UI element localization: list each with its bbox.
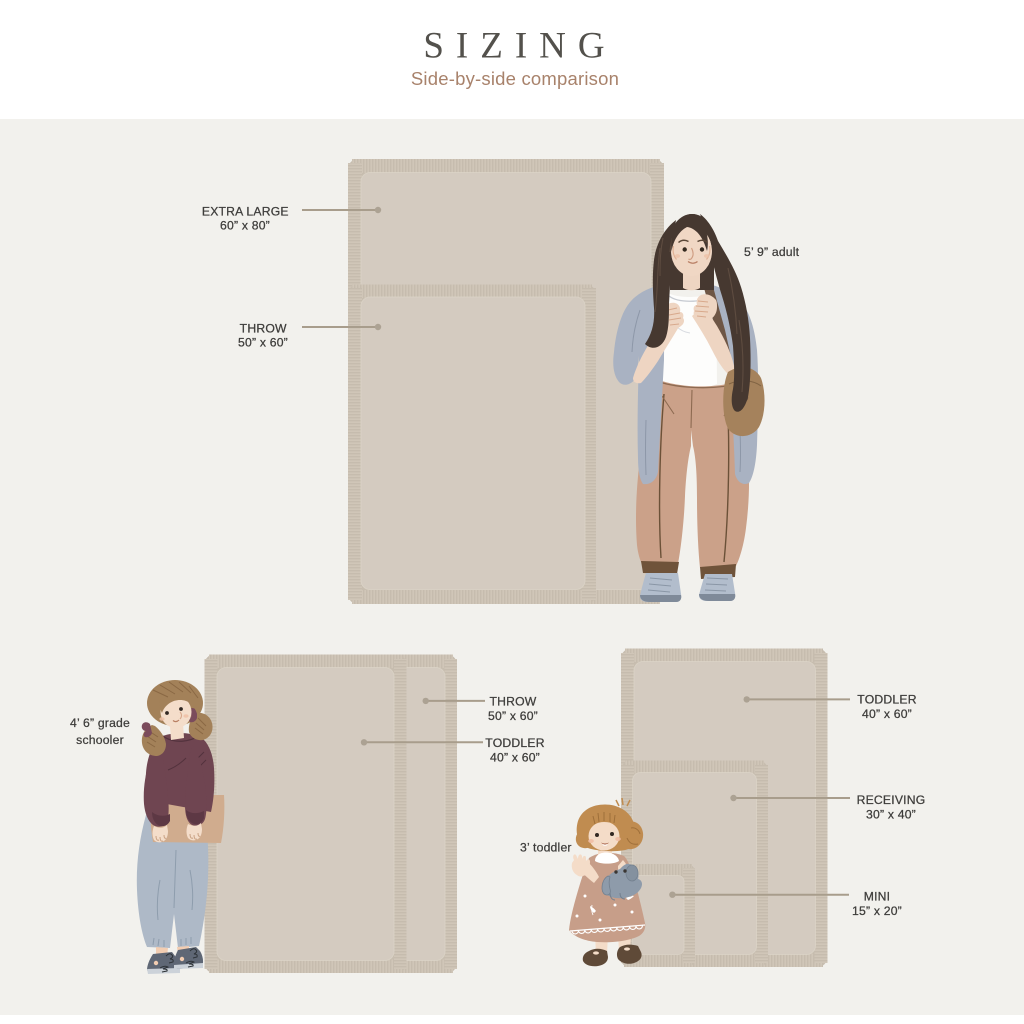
svg-text:50” x 60”: 50” x 60” (238, 336, 288, 350)
svg-text:THROW: THROW (489, 695, 536, 709)
svg-text:30” x 40”: 30” x 40” (866, 807, 916, 821)
svg-text:Side-by-side comparison: Side-by-side comparison (411, 68, 619, 89)
svg-text:50” x 60”: 50” x 60” (488, 709, 538, 723)
svg-text:40” x 60”: 40” x 60” (862, 707, 912, 721)
svg-text:3’ toddler: 3’ toddler (520, 841, 572, 855)
svg-text:EXTRA LARGE: EXTRA LARGE (202, 205, 289, 219)
svg-text:RECEIVING: RECEIVING (857, 793, 926, 807)
svg-text:MINI: MINI (864, 890, 891, 904)
svg-text:SIZING: SIZING (423, 26, 616, 67)
svg-text:40” x 60”: 40” x 60” (490, 751, 540, 765)
svg-text:TODDLER: TODDLER (857, 693, 916, 707)
svg-text:5’ 9” adult: 5’ 9” adult (744, 245, 800, 259)
svg-text:15” x 20”: 15” x 20” (852, 904, 902, 918)
svg-text:4’ 6” grade: 4’ 6” grade (70, 716, 130, 730)
svg-text:THROW: THROW (240, 322, 287, 336)
svg-text:TODDLER: TODDLER (485, 736, 544, 750)
svg-text:schooler: schooler (76, 733, 124, 747)
svg-text:60” x 80”: 60” x 80” (220, 219, 270, 233)
